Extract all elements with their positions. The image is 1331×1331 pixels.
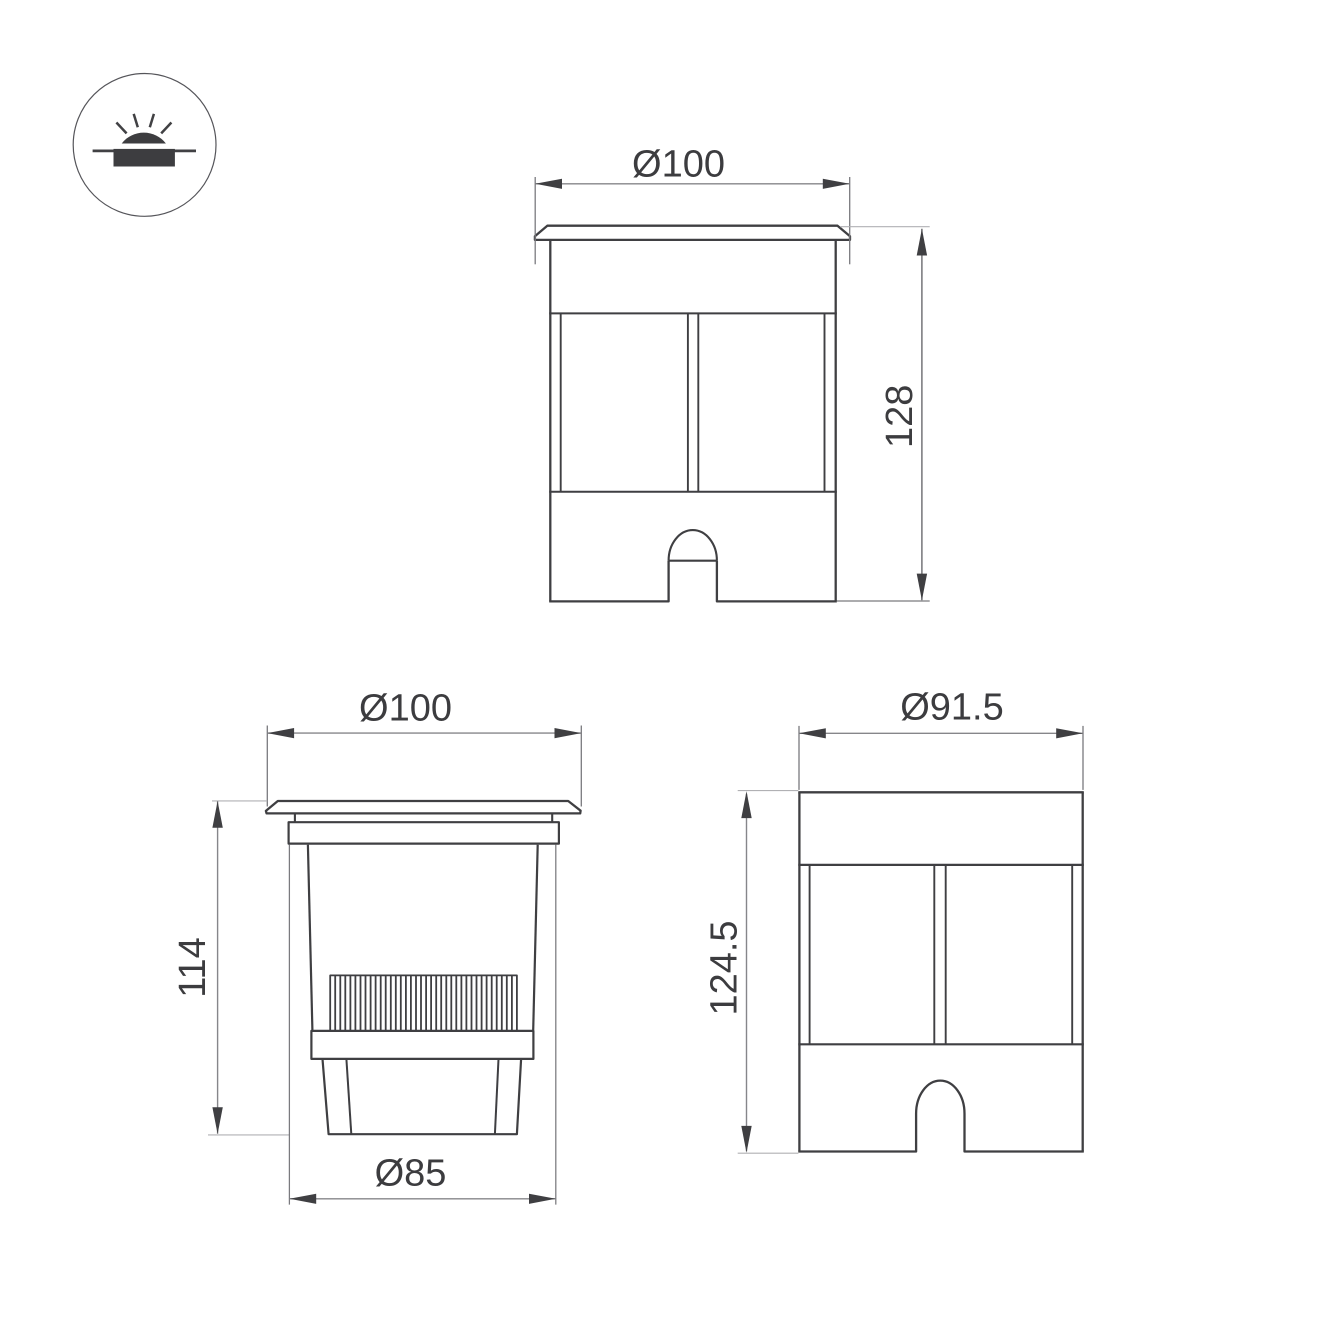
svg-text:Ø100: Ø100 xyxy=(359,688,452,730)
svg-text:128: 128 xyxy=(879,385,921,448)
svg-text:Ø100: Ø100 xyxy=(632,143,725,185)
svg-text:Ø85: Ø85 xyxy=(375,1152,447,1194)
svg-text:Ø91.5: Ø91.5 xyxy=(900,686,1004,728)
svg-text:114: 114 xyxy=(172,937,214,998)
svg-text:124.5: 124.5 xyxy=(704,920,746,1015)
